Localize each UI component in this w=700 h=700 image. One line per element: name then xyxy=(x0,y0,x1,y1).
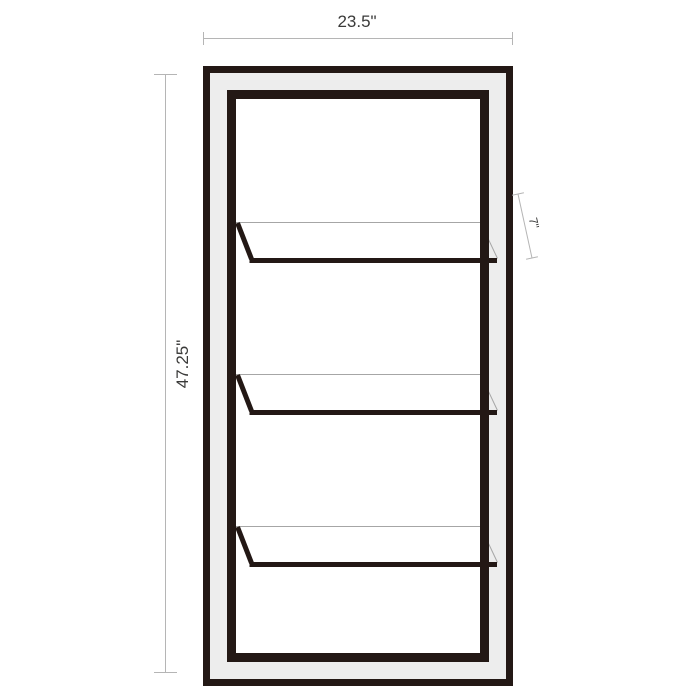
height-dimension: 47.25" xyxy=(154,74,192,673)
cabinet-interior xyxy=(236,99,480,653)
height-dimension-label: 47.25" xyxy=(173,340,192,389)
bookcase-dimension-diagram: 23.5" 47.25" 7" xyxy=(0,0,700,700)
depth-dimension: 7" xyxy=(512,193,542,260)
cabinet xyxy=(203,66,513,686)
diagram-canvas: 23.5" 47.25" 7" xyxy=(0,0,700,700)
depth-dimension-label: 7" xyxy=(526,216,542,230)
width-dimension: 23.5" xyxy=(203,12,513,45)
width-dimension-label: 23.5" xyxy=(337,12,376,31)
